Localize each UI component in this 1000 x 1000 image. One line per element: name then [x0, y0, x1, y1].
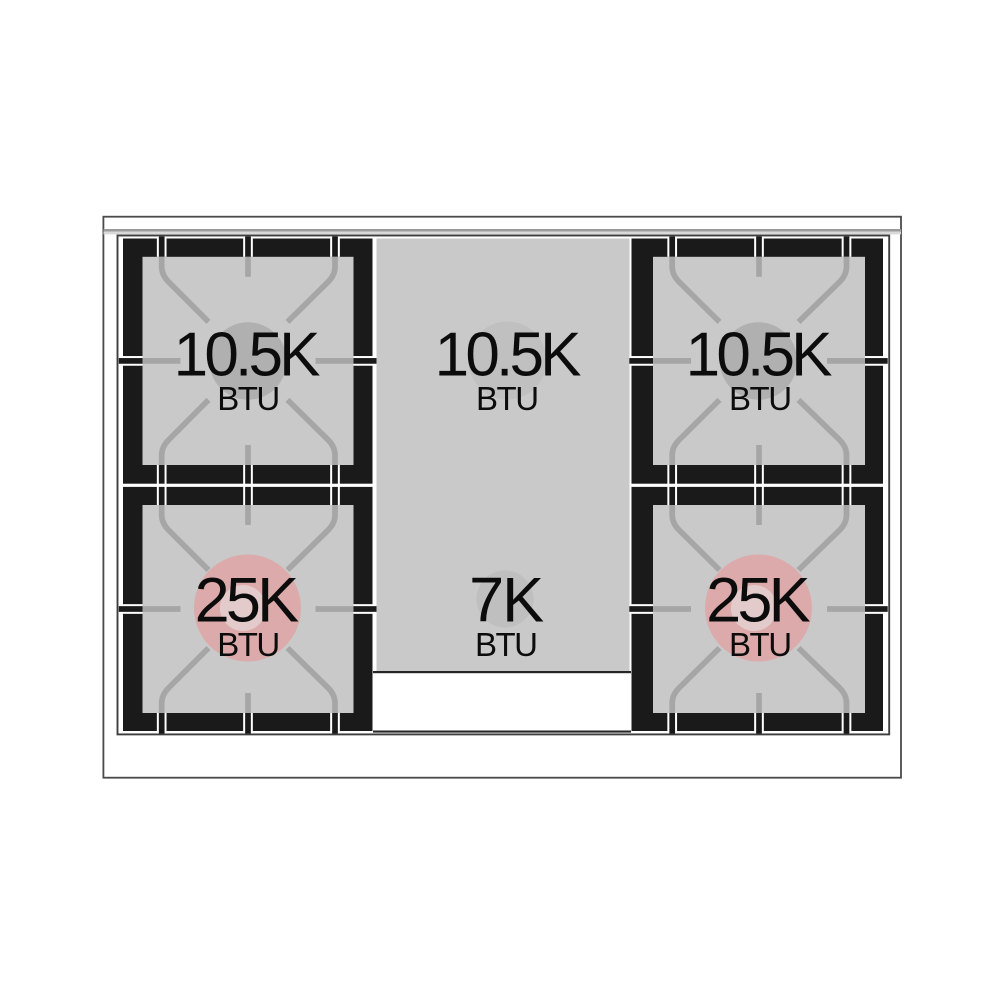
svg-text:10.5K: 10.5K [435, 320, 581, 389]
svg-text:BTU: BTU [217, 626, 279, 663]
svg-text:25K: 25K [195, 565, 299, 635]
svg-text:25K: 25K [706, 565, 810, 635]
svg-text:10.5K: 10.5K [686, 320, 832, 389]
svg-text:BTU: BTU [476, 380, 538, 417]
svg-text:10.5K: 10.5K [174, 320, 320, 389]
svg-text:7K: 7K [469, 565, 544, 635]
svg-text:BTU: BTU [475, 626, 537, 663]
svg-text:BTU: BTU [729, 380, 791, 417]
svg-text:BTU: BTU [217, 380, 279, 417]
svg-text:BTU: BTU [729, 626, 791, 663]
